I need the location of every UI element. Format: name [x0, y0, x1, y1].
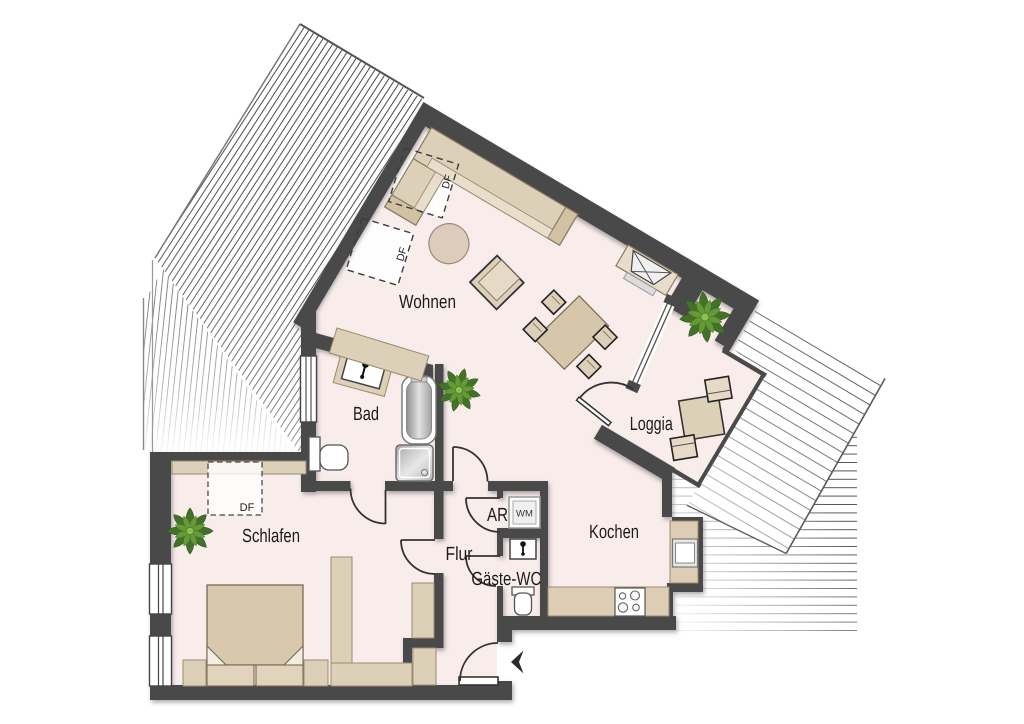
svg-text:Loggia: Loggia: [630, 414, 673, 435]
svg-text:WM: WM: [516, 509, 533, 520]
svg-text:AR: AR: [487, 505, 508, 526]
svg-text:Gäste-WC: Gäste-WC: [471, 569, 541, 590]
svg-text:DF: DF: [240, 502, 255, 514]
svg-text:Wohnen: Wohnen: [399, 292, 456, 313]
svg-text:Kochen: Kochen: [589, 522, 639, 543]
svg-text:Flur: Flur: [446, 544, 474, 565]
svg-text:Bad: Bad: [353, 404, 379, 425]
svg-text:Schlafen: Schlafen: [242, 526, 300, 547]
